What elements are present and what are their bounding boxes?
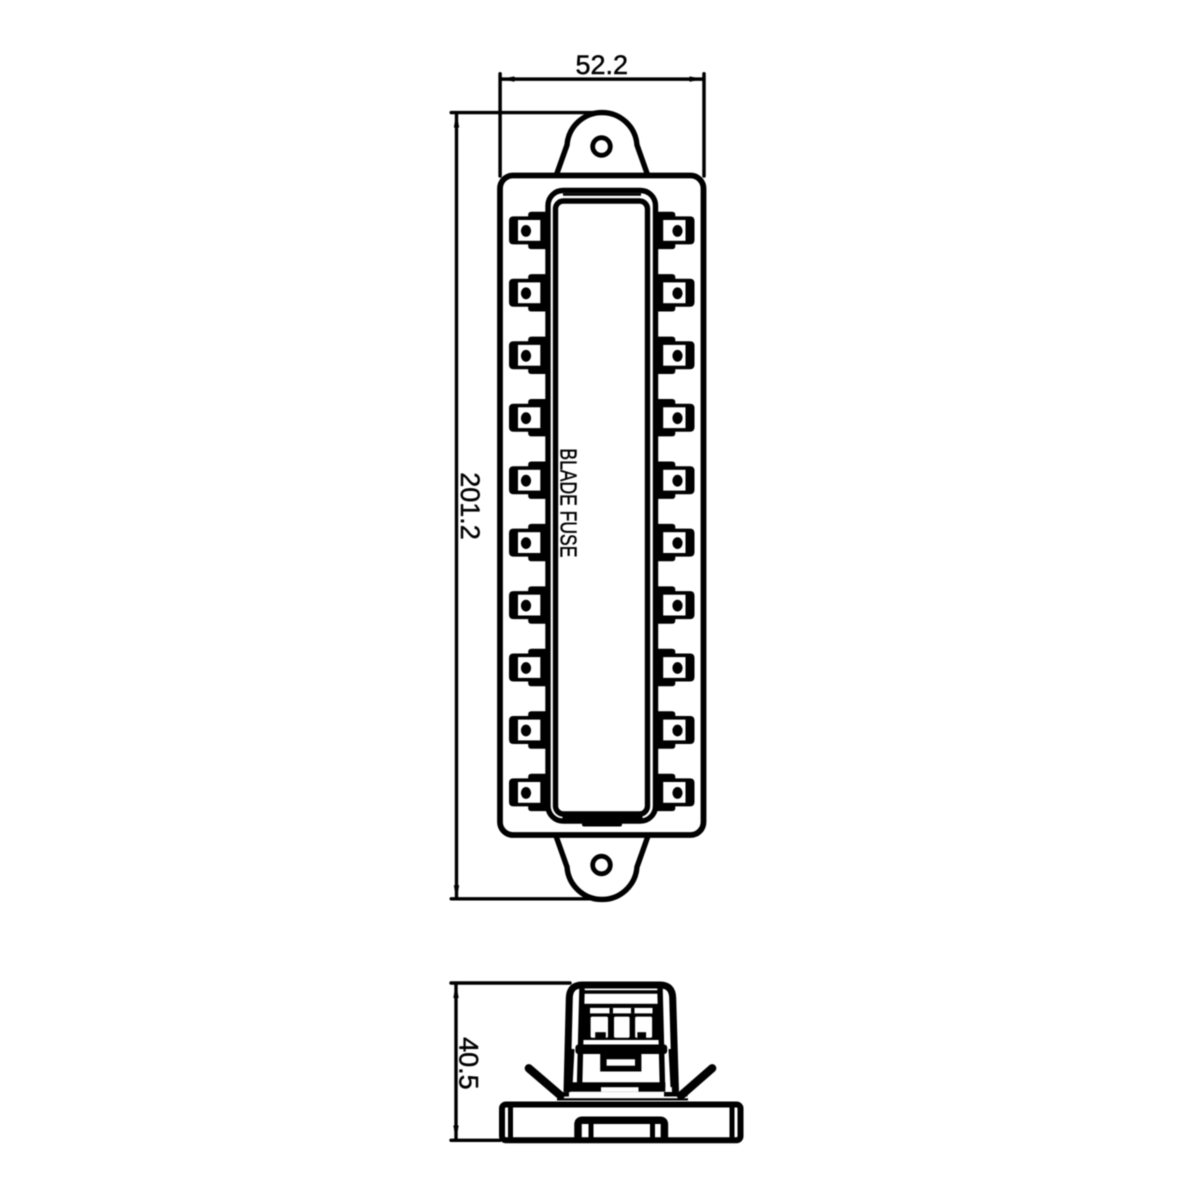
svg-text:BLADE FUSE: BLADE FUSE [556, 448, 582, 557]
svg-text:52.2: 52.2 [576, 50, 629, 80]
svg-text:40.5: 40.5 [454, 1037, 484, 1090]
svg-text:201.2: 201.2 [455, 472, 485, 540]
